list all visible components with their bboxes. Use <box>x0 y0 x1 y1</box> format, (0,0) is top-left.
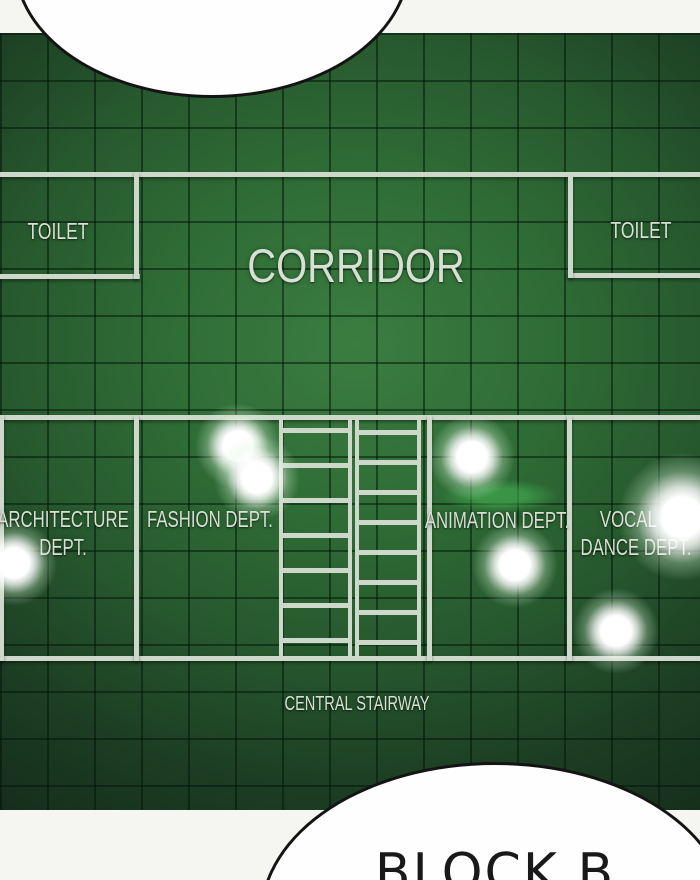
room-label-fashion-dept: FASHION DEPT. <box>147 505 273 533</box>
architecture-line1: ARCHITECTURE <box>0 506 129 532</box>
room-label-corridor: CORRIDOR <box>247 238 465 294</box>
wall-animation-vocal <box>567 415 572 661</box>
room-label-animation-dept: ANIMATION DEPT. <box>425 506 569 534</box>
wall-corridor-top <box>0 172 700 177</box>
vocal-line1: VOCAL & <box>600 506 672 532</box>
wall-architecture-fashion <box>134 415 139 661</box>
room-label-toilet-right: TOILET <box>611 217 672 245</box>
room-label-toilet-left: TOILET <box>28 218 89 246</box>
wall-toilet-left-bottom <box>0 274 140 279</box>
architecture-line2: DEPT. <box>39 534 87 560</box>
central-stairway-ladder-left <box>279 415 352 661</box>
label-central-stairway: CENTRAL STAIRWAY <box>285 692 430 716</box>
wall-toilet-left-side <box>134 172 139 279</box>
central-stairway-ladder-right <box>355 415 421 661</box>
wall-toilet-right-bottom <box>568 273 700 278</box>
comic-panel: TOILET CORRIDOR TOILET ARCHITECTURE DEPT… <box>0 0 700 880</box>
wall-toilet-right-side <box>568 176 573 278</box>
wall-stair-animation <box>427 415 432 661</box>
room-label-architecture-dept: ARCHITECTURE DEPT. <box>0 505 129 561</box>
speech-bubble-text: BLOCK B <box>263 847 700 880</box>
room-label-vocal-dance-dept: VOCAL & DANCE DEPT. <box>580 505 691 561</box>
vocal-line2: DANCE DEPT. <box>580 534 691 560</box>
